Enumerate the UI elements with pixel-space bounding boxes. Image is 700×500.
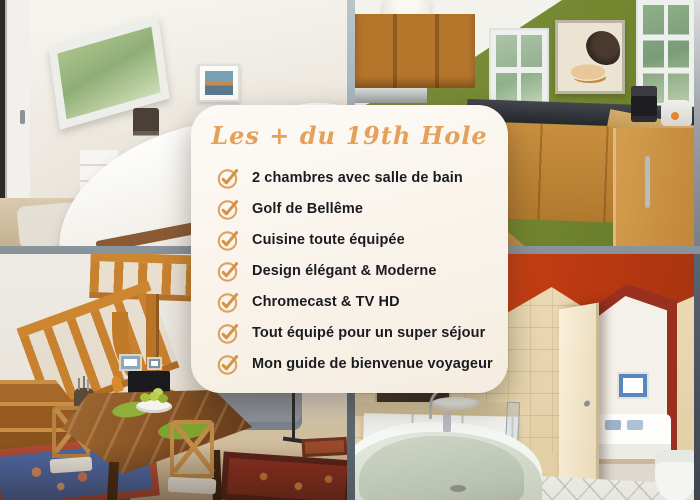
feature-text: 2 chambres avec salle de bain [252, 170, 463, 186]
wall-frame-left [119, 354, 142, 371]
feature-text: Design élégant & Moderne [252, 263, 437, 279]
wall-frame-right [147, 357, 162, 370]
feature-text: Cuisine toute équipée [252, 232, 405, 248]
lower-cabinet-right [613, 128, 700, 246]
table-leg [107, 462, 119, 500]
feature-text: Tout équipé pour un super séjour [252, 325, 485, 341]
feature-text: Chromecast & TV HD [252, 294, 400, 310]
feature-item: Cuisine toute équipée [216, 224, 508, 255]
photo-edge [694, 254, 700, 500]
photo-edge [694, 0, 700, 246]
extractor-hood [355, 88, 427, 103]
check-circle-icon [216, 197, 240, 221]
rooster-artwork [555, 20, 625, 94]
features-card: Les + du 19th Hole 2 chambres avec salle… [191, 105, 508, 393]
chair-cushion [50, 457, 93, 474]
feature-item: Golf de Bellême [216, 193, 508, 224]
check-circle-icon [216, 259, 240, 283]
feature-item: Mon guide de bienvenue voyageur [216, 348, 508, 379]
feature-text: Golf de Bellême [252, 201, 363, 217]
wall-art-frame [198, 64, 240, 102]
check-circle-icon [216, 321, 240, 345]
coffee-machine [631, 86, 657, 122]
oriental-rug-right [220, 452, 347, 500]
check-circle-icon [216, 228, 240, 252]
check-circle-icon [216, 352, 240, 376]
card-title: Les + du 19th Hole [191, 119, 508, 153]
bedroom-art-frame [617, 372, 649, 399]
fruit-bowl [136, 400, 172, 413]
open-door [559, 302, 599, 500]
check-circle-icon [216, 290, 240, 314]
dining-chair-right [170, 420, 214, 478]
toaster [661, 100, 692, 126]
feature-item: 2 chambres avec salle de bain [216, 162, 508, 193]
check-circle-icon [216, 166, 240, 190]
features-list: 2 chambres avec salle de bain Golf de Be… [191, 162, 508, 379]
feature-item: Tout équipé pour un super séjour [216, 317, 508, 348]
tub-faucet [443, 412, 451, 432]
chair-cushion [168, 477, 217, 494]
toilet [655, 450, 697, 500]
feature-item: Chromecast & TV HD [216, 286, 508, 317]
feature-text: Mon guide de bienvenue voyageur [252, 356, 493, 372]
small-rug [302, 437, 347, 457]
upper-cabinets [355, 14, 475, 88]
feature-item: Design élégant & Moderne [216, 255, 508, 286]
kitchen-window-left [491, 30, 547, 110]
photo-collage: Les + du 19th Hole 2 chambres avec salle… [0, 0, 700, 500]
